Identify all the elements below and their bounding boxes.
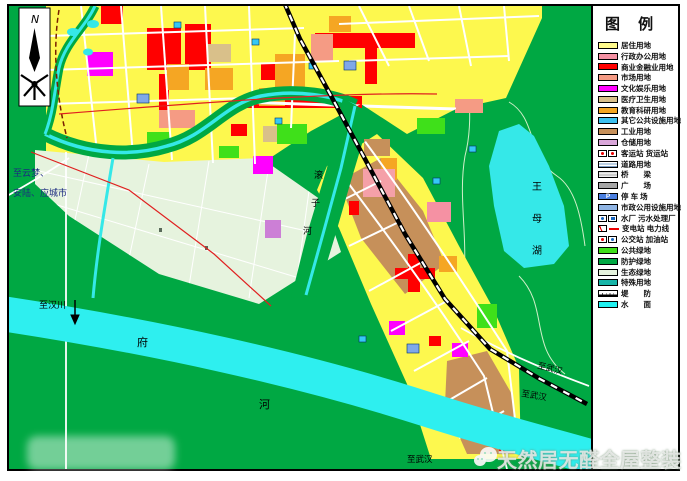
legend-title: 图 例 (605, 13, 678, 34)
legend-swatch (598, 53, 618, 60)
legend-item: 广 场 (598, 180, 678, 191)
legend-item-label: 市场用地 (621, 72, 651, 83)
wangmu-lake-label-1: 王 (532, 182, 542, 193)
bridge-swatch (598, 171, 618, 178)
legend-item: 防护绿地 (598, 256, 678, 267)
legend-item: 堤 防 (598, 288, 678, 299)
parking-letter: P (606, 193, 610, 200)
blurred-watermark (27, 436, 175, 470)
bus-station-icon (598, 236, 607, 243)
north-arrow: N (19, 8, 50, 106)
legend-item: 市场用地 (598, 72, 678, 83)
legend-item-label: 其它公共设施用地 (621, 115, 681, 126)
legend-item-label: 水 面 (621, 299, 651, 310)
legend-item: 特殊用地 (598, 278, 678, 289)
wangmu-lake-label-3: 湖 (532, 245, 542, 257)
gas-station-icon (608, 236, 617, 243)
legend-item: 水 面 (598, 299, 678, 310)
legend-swatch (598, 139, 618, 146)
legend-item-label: 停 车 场 (621, 191, 648, 202)
gunzi-river-label-1: 滚 (314, 169, 323, 181)
legend-item: 道路用地 (598, 159, 678, 170)
legend-swatch (598, 96, 618, 103)
legend-item-label: 水厂 污水处理厂 (621, 213, 676, 224)
waterworks-icon (598, 215, 607, 222)
parking-swatch: P (598, 193, 618, 200)
legend-item: 教育科研用地 (598, 105, 678, 116)
legend-item-label: 堤 防 (621, 288, 651, 299)
legend-item-label: 生态绿地 (621, 267, 651, 278)
legend-swatch (598, 74, 618, 81)
legend-item-label: 教育科研用地 (621, 105, 666, 116)
legend-item-label: 客运站 货运站 (621, 148, 668, 159)
passenger-station-icon (598, 150, 607, 157)
legend-item: 变电站 电力线 (598, 224, 678, 235)
watermark-text: 天然居无醛全屋整装 (497, 444, 682, 473)
eco-green-swatch (598, 269, 618, 276)
legend-item-label: 商业金融业用地 (621, 62, 674, 73)
legend-item: 工业用地 (598, 126, 678, 137)
legend-item: 水厂 污水处理厂 (598, 213, 678, 224)
legend-item-label: 工业用地 (621, 126, 651, 137)
substation-icon (598, 225, 607, 232)
legend-swatch (598, 63, 618, 70)
legend-item: 公交站 加油站 (598, 234, 678, 245)
legend-swatch (598, 107, 618, 114)
legend-item-label: 公交站 加油站 (621, 234, 668, 245)
legend-item: 文化娱乐用地 (598, 83, 678, 94)
to-wuhan-south-label: 至武汉 (407, 454, 433, 465)
legend-item-label: 居住用地 (621, 40, 651, 51)
to-hanchuan-label: 至汉川 (39, 300, 66, 311)
legend-item-label: 公共绿地 (621, 245, 651, 256)
legend-item-label: 特殊用地 (621, 277, 651, 288)
to-yunmeng-label-2: 安陆、应城市 (13, 187, 67, 199)
legend-rows: 居住用地 行政办公用地 商业金融业用地 市场用地 文化娱乐用地 医疗卫生用地 教… (593, 40, 678, 310)
legend-item-label: 道路用地 (621, 159, 651, 170)
legend-item: 公共绿地 (598, 245, 678, 256)
gunzi-river-label-3: 河 (303, 225, 312, 237)
protective-green-swatch (598, 258, 618, 265)
road-land-swatch (598, 161, 618, 168)
fu-river-label-1: 府 (137, 335, 148, 349)
legend-swatch (598, 42, 618, 49)
legend-item: 商业金融业用地 (598, 62, 678, 73)
to-yunmeng-label-1: 至云梦、 (13, 168, 49, 179)
municipal-swatch (598, 204, 618, 211)
legend-panel: 图 例 居住用地 行政办公用地 商业金融业用地 市场用地 文化娱乐用地 医疗卫生… (591, 6, 678, 469)
legend-item: 居住用地 (598, 40, 678, 51)
special-land-swatch (598, 279, 618, 286)
legend-item: 医疗卫生用地 (598, 94, 678, 105)
freight-station-icon (608, 150, 617, 157)
water-swatch (598, 301, 618, 308)
legend-item-label: 桥 梁 (621, 169, 651, 180)
legend-item-label: 医疗卫生用地 (621, 94, 666, 105)
map-canvas: N 至云梦、 安陆、应城市 至汉川 府 河 王 母 湖 滚 子 河 (9, 6, 591, 469)
dike-swatch (598, 290, 618, 297)
planning-map: N 至云梦、 安陆、应城市 至汉川 府 河 王 母 湖 滚 子 河 (9, 6, 591, 469)
legend-item-label: 市政公用设施用地 (621, 202, 681, 213)
sewage-plant-icon (608, 215, 617, 222)
legend-item: P停 车 场 (598, 191, 678, 202)
power-line-icon (609, 228, 619, 230)
public-green-swatch (598, 247, 618, 254)
legend-item-label: 仓储用地 (621, 137, 651, 148)
legend-item-label: 变电站 电力线 (622, 223, 669, 234)
square-swatch (598, 182, 618, 189)
legend-item: 市政公用设施用地 (598, 202, 678, 213)
fu-river-label-2: 河 (259, 398, 270, 411)
legend-item: 其它公共设施用地 (598, 116, 678, 127)
gunzi-river-label-2: 子 (311, 198, 320, 209)
screenshot-stage: N 至云梦、 安陆、应城市 至汉川 府 河 王 母 湖 滚 子 河 (0, 0, 687, 481)
wangmu-lake-label-2: 母 (532, 213, 542, 225)
legend-item-label: 广 场 (621, 180, 651, 191)
legend-item: 生态绿地 (598, 267, 678, 278)
legend-item: 仓储用地 (598, 137, 678, 148)
legend-swatch (598, 85, 618, 92)
legend-swatch (598, 117, 618, 124)
legend-item: 客运站 货运站 (598, 148, 678, 159)
legend-item: 行政办公用地 (598, 51, 678, 62)
legend-item-label: 行政办公用地 (621, 51, 666, 62)
legend-item-label: 文化娱乐用地 (621, 83, 666, 94)
north-label: N (31, 13, 39, 26)
legend-item-label: 防护绿地 (621, 256, 651, 267)
legend-item: 桥 梁 (598, 170, 678, 181)
legend-swatch (598, 128, 618, 135)
